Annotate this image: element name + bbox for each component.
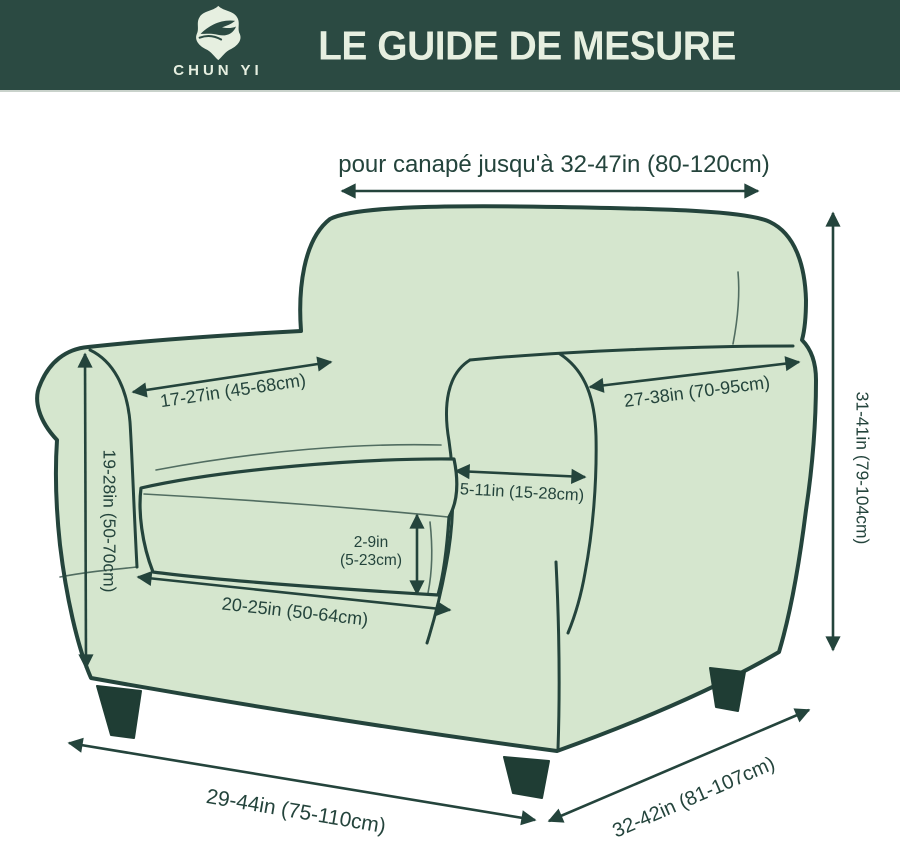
measure-guide-diagram: pour canapé jusqu'à 32-47in (80-120cm) 1… xyxy=(0,0,900,841)
dim-label-arm-height: 19-28in (50-70cm) xyxy=(99,450,120,593)
dim-label-sofa-range: pour canapé jusqu'à 32-47in (80-120cm) xyxy=(338,151,770,179)
seat-cushion xyxy=(140,459,457,595)
dim-label-cushion-height-line1: 2-9in xyxy=(340,534,402,552)
brand-name: CHUN YI xyxy=(173,62,262,79)
brand-leaf-bird-icon xyxy=(190,5,246,61)
chair-leg-front-left xyxy=(97,686,141,738)
page-title: LE GUIDE DE MESURE xyxy=(318,23,736,70)
arrow-arm-height xyxy=(85,354,86,668)
chair-leg-side-right xyxy=(710,668,745,711)
dim-label-total-height: 31-41in (79-104cm) xyxy=(852,392,873,545)
dim-label-cushion-height: 2-9in (5-23cm) xyxy=(340,534,402,570)
chair-leg-front-right xyxy=(504,757,549,798)
dim-label-cushion-height-line2: (5-23cm) xyxy=(340,552,402,570)
brand-logo: CHUN YI xyxy=(173,5,262,79)
header-banner: CHUN YI LE GUIDE DE MESURE xyxy=(0,0,900,92)
armchair-drawing xyxy=(0,0,900,841)
